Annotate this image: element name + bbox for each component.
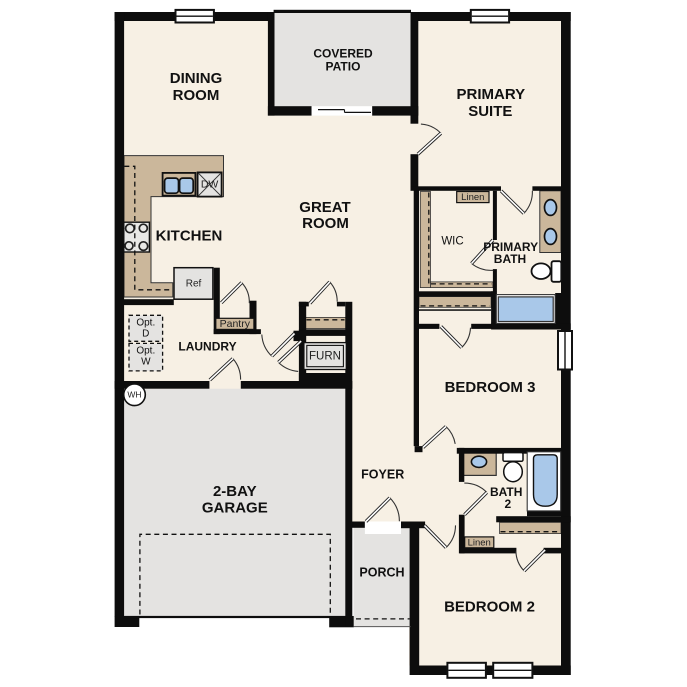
svg-text:Linen: Linen [468,537,491,548]
svg-text:FOYER: FOYER [361,467,404,481]
svg-text:BEDROOM 2: BEDROOM 2 [444,598,535,615]
svg-text:FURN: FURN [309,351,341,363]
svg-text:PATIO: PATIO [326,59,361,73]
svg-text:DINING: DINING [170,70,223,87]
svg-text:W: W [141,357,151,368]
svg-text:SUITE: SUITE [468,103,512,120]
svg-text:BEDROOM 3: BEDROOM 3 [445,379,536,396]
svg-text:Pantry: Pantry [220,318,251,330]
svg-text:Linen: Linen [461,192,484,203]
svg-text:PRIMARY: PRIMARY [456,86,525,103]
svg-text:PORCH: PORCH [359,566,404,580]
svg-text:2-BAY: 2-BAY [213,483,257,500]
svg-text:DW: DW [201,179,219,191]
svg-text:KITCHEN: KITCHEN [156,227,223,244]
svg-text:WH: WH [127,390,141,400]
svg-text:ROOM: ROOM [302,215,349,232]
svg-text:LAUNDRY: LAUNDRY [178,340,236,354]
svg-text:2: 2 [504,497,511,511]
svg-text:Opt.: Opt. [136,318,155,329]
svg-text:BATH: BATH [494,252,526,266]
svg-text:GREAT: GREAT [299,199,350,216]
svg-text:Ref: Ref [186,279,202,290]
svg-text:WIC: WIC [441,236,463,248]
svg-text:ROOM: ROOM [173,87,220,104]
svg-text:Opt.: Opt. [136,346,155,357]
svg-text:D: D [142,329,149,340]
svg-text:GARAGE: GARAGE [202,499,268,516]
